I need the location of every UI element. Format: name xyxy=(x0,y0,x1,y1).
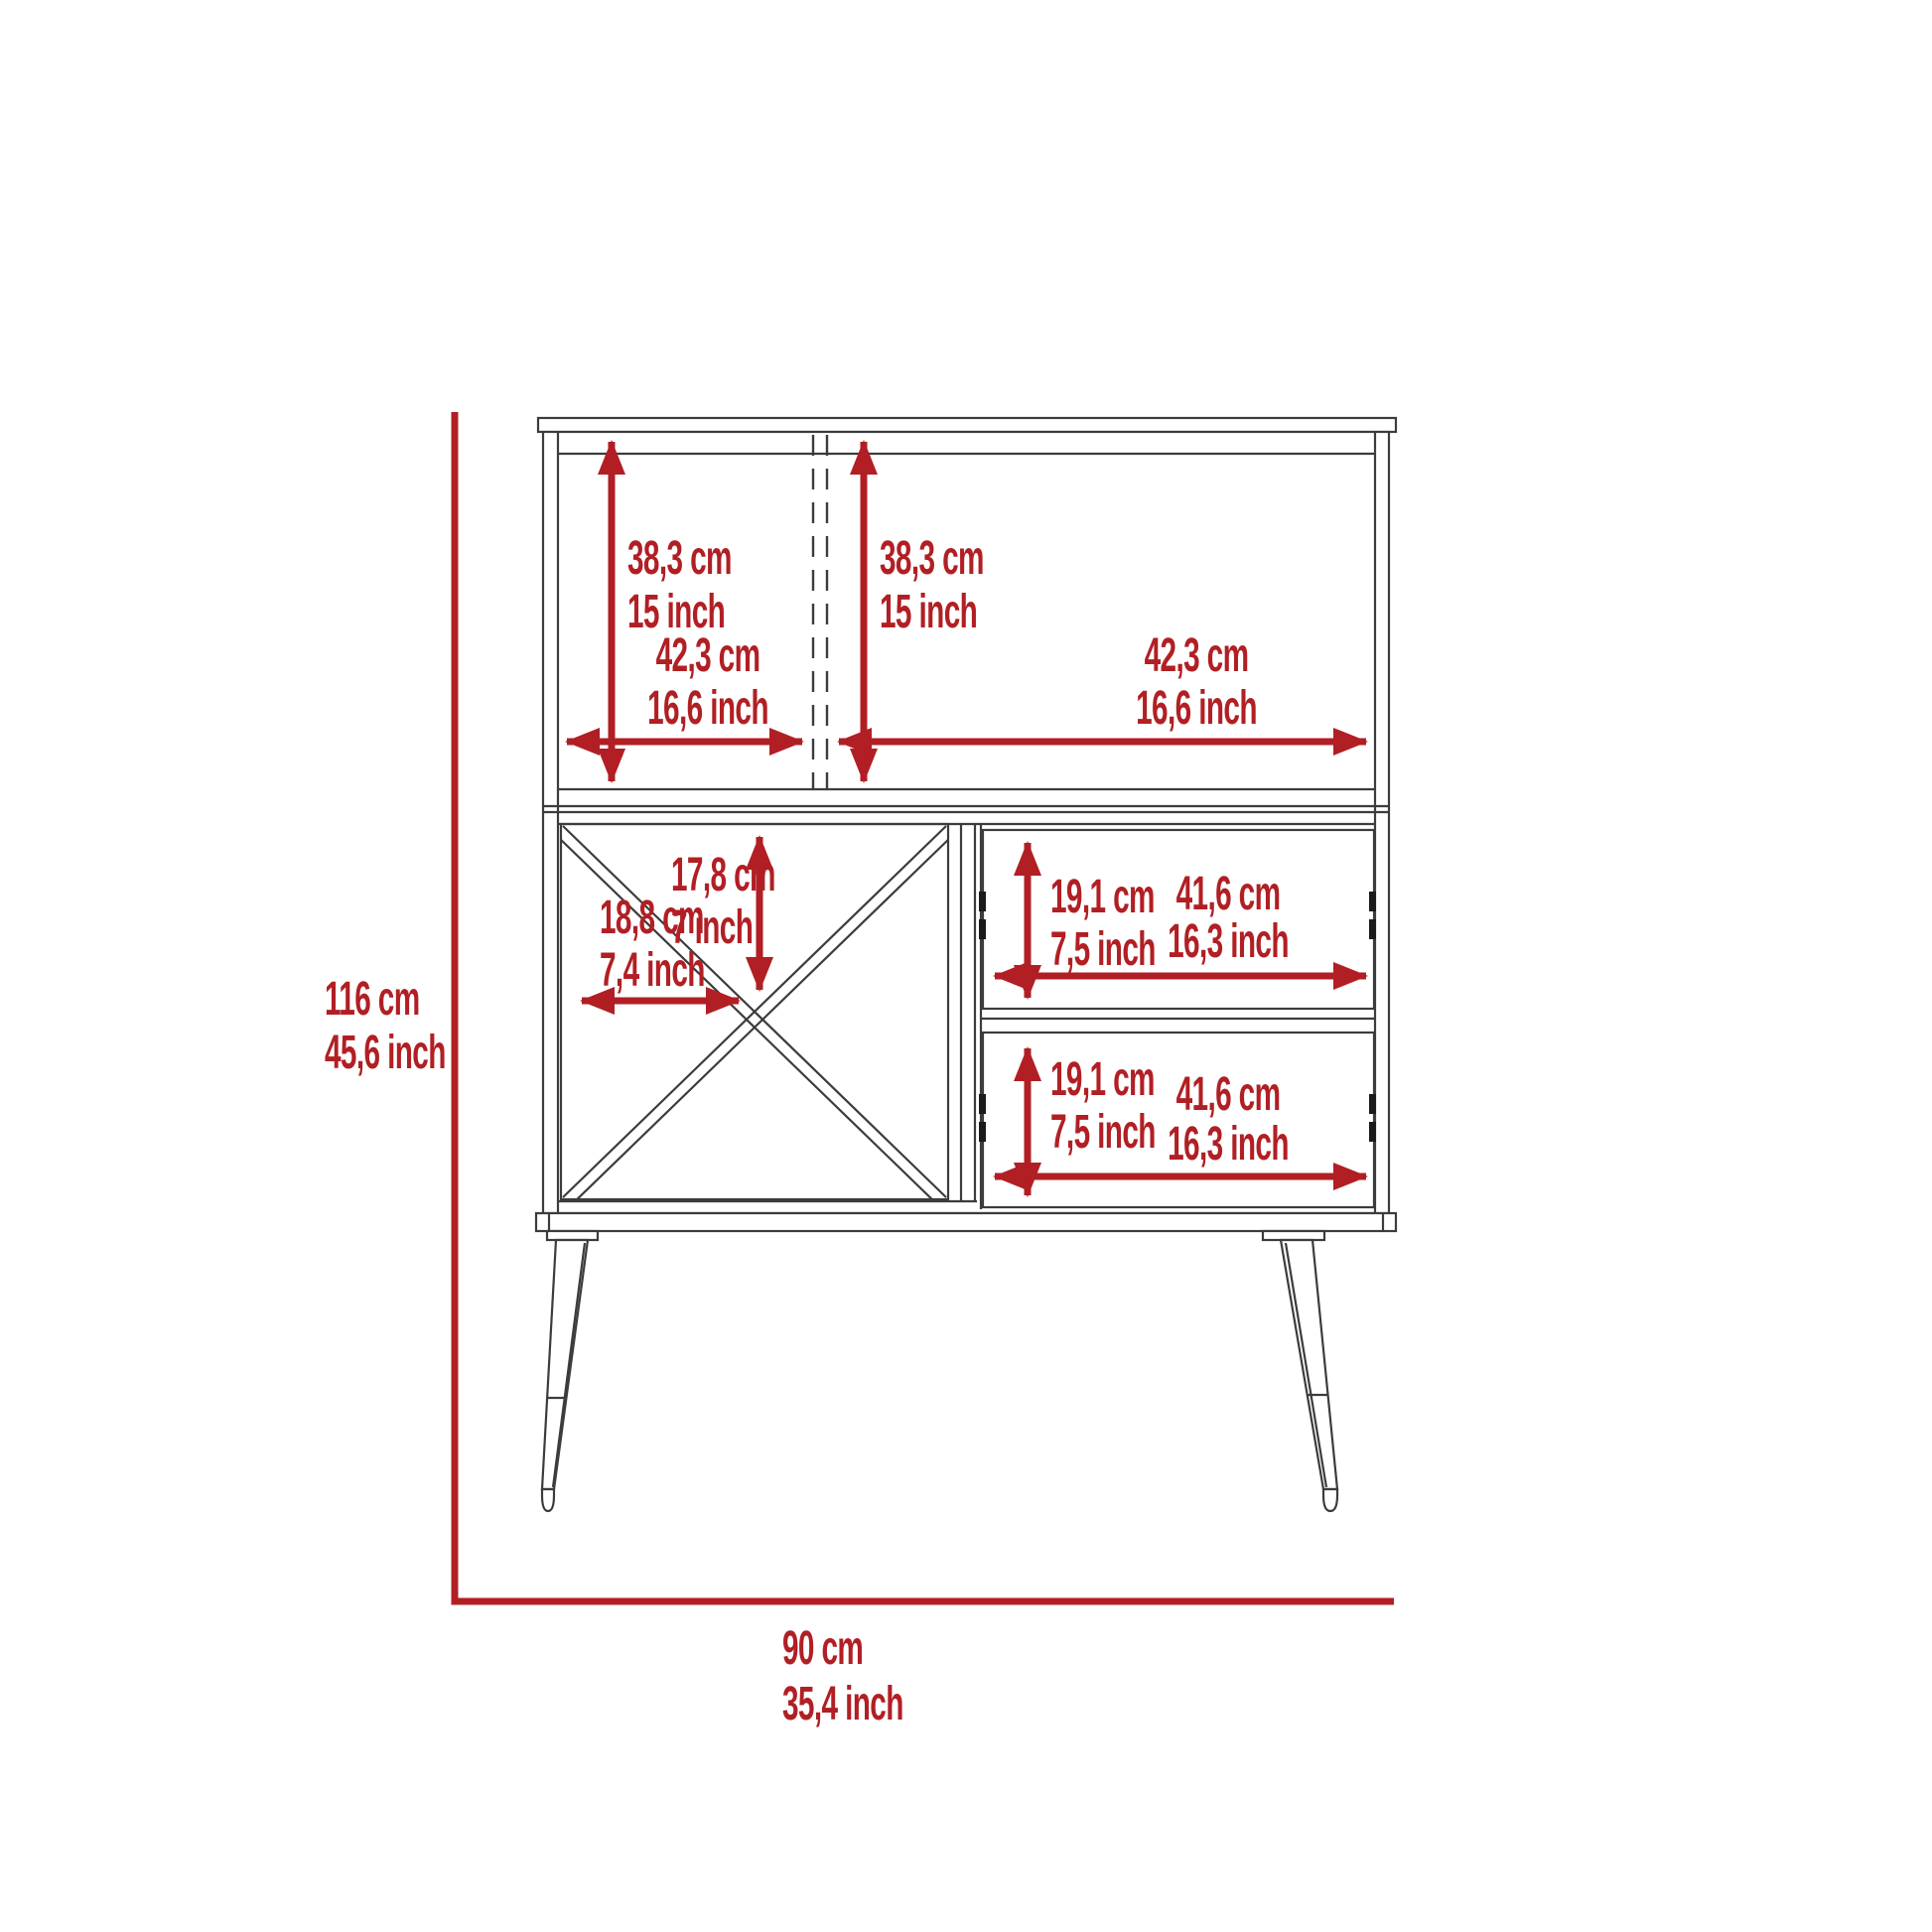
top-right-height-inch: 15 inch xyxy=(880,586,977,638)
lower-drawer-width-cm: 41,6 cm xyxy=(1176,1068,1281,1121)
top-left-width-label: 42,3 cm 16,6 inch xyxy=(647,629,768,735)
upper-drawer-width-label: 41,6 cm 16,3 inch xyxy=(1168,868,1289,968)
right-leg xyxy=(1263,1231,1337,1511)
top-left-width-inch: 16,6 inch xyxy=(647,682,768,735)
right-leg-plate xyxy=(1263,1231,1324,1240)
upper-drawer-height-inch: 7,5 inch xyxy=(1050,923,1156,976)
top-right-width-cm: 42,3 cm xyxy=(1145,629,1249,682)
upper-drawer-width-inch: 16,3 inch xyxy=(1168,915,1289,968)
left-leg xyxy=(542,1231,598,1511)
hinge-mark xyxy=(1369,919,1376,939)
hinge-mark xyxy=(1369,892,1376,911)
plinth xyxy=(536,1213,1396,1231)
cabinet-dimension-drawing: 116 cm 45,6 inch 90 cm 35,4 inch 38,3 cm… xyxy=(0,0,1932,1932)
left-leg-plate xyxy=(547,1231,598,1240)
top-left-height-label: 38,3 cm 15 inch xyxy=(627,532,732,638)
hinge-mark xyxy=(979,892,986,911)
cabinet-top-lip xyxy=(538,418,1396,432)
top-right-width-label: 42,3 cm 16,6 inch xyxy=(1136,629,1257,735)
upper-drawer-height-cm: 19,1 cm xyxy=(1050,871,1155,923)
lower-drawer-height-inch: 7,5 inch xyxy=(1050,1106,1156,1159)
hinge-mark xyxy=(979,919,986,939)
lower-drawer-width-label: 41,6 cm 16,3 inch xyxy=(1168,1068,1289,1171)
lower-drawer-height-label: 19,1 cm 7,5 inch xyxy=(1050,1053,1156,1159)
left-leg-tip xyxy=(542,1489,554,1511)
hinge-mark xyxy=(979,1122,986,1142)
overall-height-label: 116 cm 45,6 inch xyxy=(325,973,446,1079)
dimension-diagram-page: 116 cm 45,6 inch 90 cm 35,4 inch 38,3 cm… xyxy=(0,0,1932,1932)
wine-rack-height-inch: 7 inch xyxy=(671,901,753,954)
overall-height-inch: 45,6 inch xyxy=(325,1027,446,1079)
wine-rack-height-cm: 17,8 cm xyxy=(671,849,775,901)
upper-drawer-height-label: 19,1 cm 7,5 inch xyxy=(1050,871,1156,976)
lower-drawer-height-cm: 19,1 cm xyxy=(1050,1053,1155,1106)
hinge-mark xyxy=(979,1094,986,1114)
overall-width-inch: 35,4 inch xyxy=(782,1678,903,1730)
overall-width-cm: 90 cm xyxy=(782,1622,863,1675)
top-right-width-inch: 16,6 inch xyxy=(1136,682,1257,735)
lower-drawer-width-inch: 16,3 inch xyxy=(1168,1118,1289,1171)
top-right-height-cm: 38,3 cm xyxy=(880,532,984,585)
base-and-legs xyxy=(536,1213,1396,1511)
hinge-mark xyxy=(1369,1122,1376,1142)
overall-height-cm: 116 cm xyxy=(325,973,420,1026)
hinge-mark xyxy=(1369,1094,1376,1114)
top-right-height-label: 38,3 cm 15 inch xyxy=(880,532,984,638)
right-leg-tip xyxy=(1323,1489,1337,1511)
right-leg-body xyxy=(1281,1240,1337,1489)
top-left-width-cm: 42,3 cm xyxy=(656,629,760,682)
overall-width-label: 90 cm 35,4 inch xyxy=(782,1622,903,1730)
top-left-height-cm: 38,3 cm xyxy=(627,532,732,585)
upper-drawer-width-cm: 41,6 cm xyxy=(1176,868,1281,920)
